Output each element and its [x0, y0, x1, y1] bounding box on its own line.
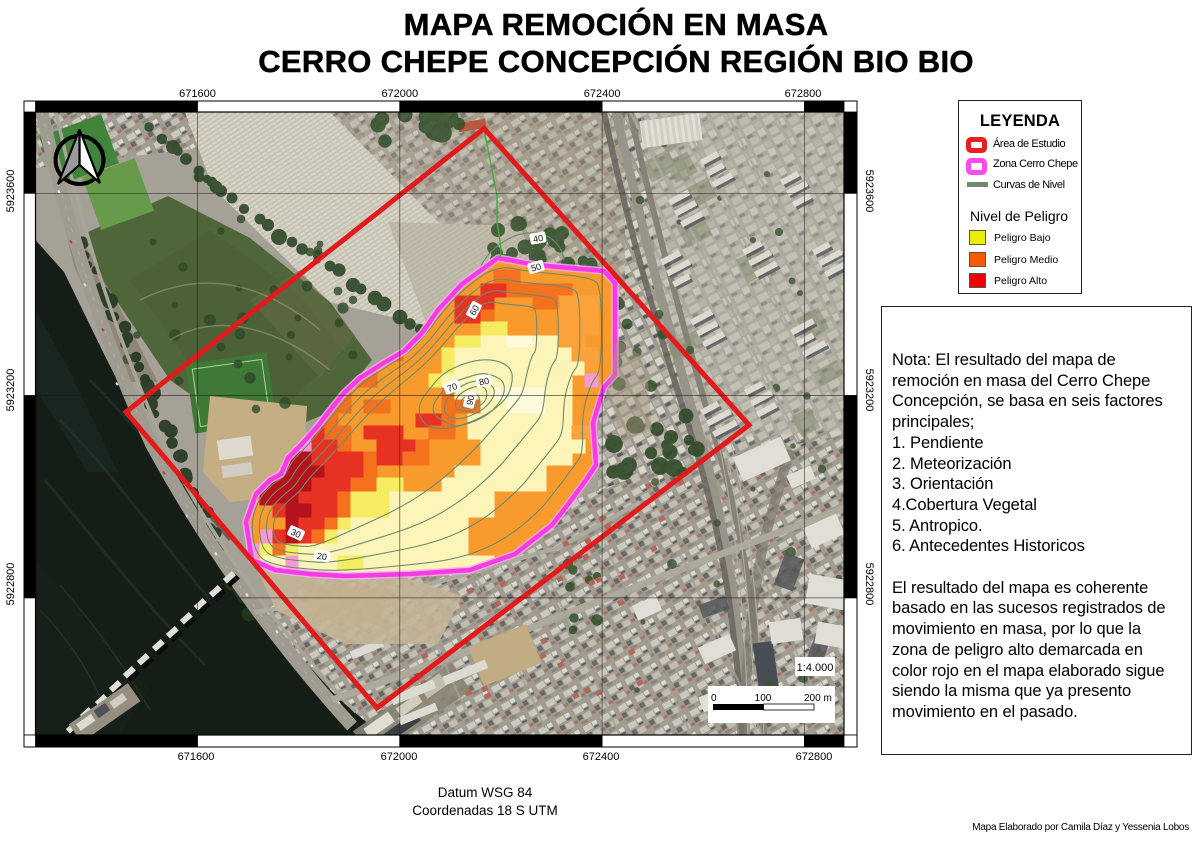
svg-text:672400: 672400 — [584, 88, 621, 100]
svg-text:200 m: 200 m — [804, 693, 832, 704]
svg-text:672000: 672000 — [381, 88, 418, 100]
svg-text:5923200: 5923200 — [5, 369, 17, 412]
svg-text:20: 20 — [316, 551, 327, 562]
svg-text:672400: 672400 — [583, 751, 620, 763]
svg-text:40: 40 — [532, 233, 544, 245]
svg-text:672000: 672000 — [381, 751, 418, 763]
svg-text:671600: 671600 — [178, 751, 215, 763]
svg-text:5923600: 5923600 — [5, 170, 17, 213]
svg-text:5922800: 5922800 — [863, 563, 875, 606]
svg-text:672800: 672800 — [796, 751, 833, 763]
svg-text:672800: 672800 — [785, 88, 822, 100]
svg-text:5922800: 5922800 — [5, 563, 17, 606]
svg-text:100: 100 — [755, 693, 772, 704]
svg-text:1:4.000: 1:4.000 — [797, 662, 834, 674]
svg-text:5923200: 5923200 — [863, 369, 875, 412]
svg-text:671600: 671600 — [179, 88, 216, 100]
svg-text:80: 80 — [478, 376, 490, 388]
svg-text:5923600: 5923600 — [863, 170, 875, 213]
svg-text:0: 0 — [711, 693, 717, 704]
